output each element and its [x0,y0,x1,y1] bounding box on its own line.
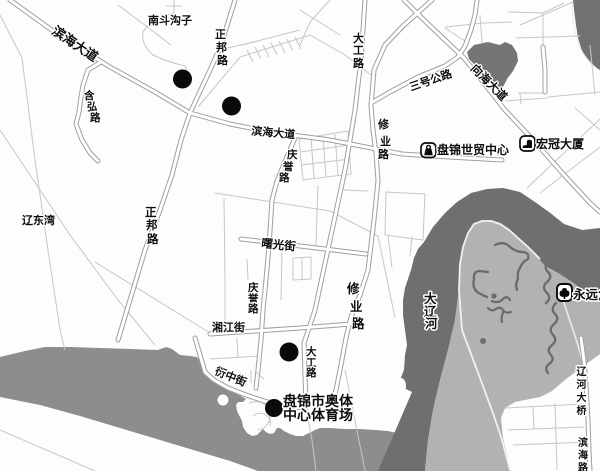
svg-text:永远角: 永远角 [572,287,600,302]
svg-text:盘锦世贸中心: 盘锦世贸中心 [437,142,509,157]
svg-text:庆誉路: 庆誉路 [247,281,259,315]
svg-text:大工路: 大工路 [306,345,317,379]
svg-text:滨海路: 滨海路 [578,436,589,471]
svg-text:湘江街: 湘江街 [212,320,245,334]
svg-text:宏冠大厦: 宏冠大厦 [536,136,585,151]
svg-text:大辽河: 大辽河 [424,291,438,331]
svg-text:修业路: 修业路 [377,117,391,161]
svg-text:辽东湾: 辽东湾 [22,213,55,227]
svg-text:大工路: 大工路 [353,31,365,70]
svg-text:盘锦市奥体中心体育场: 盘锦市奥体中心体育场 [283,393,354,423]
svg-text:南斗沟子: 南斗沟子 [148,13,192,27]
